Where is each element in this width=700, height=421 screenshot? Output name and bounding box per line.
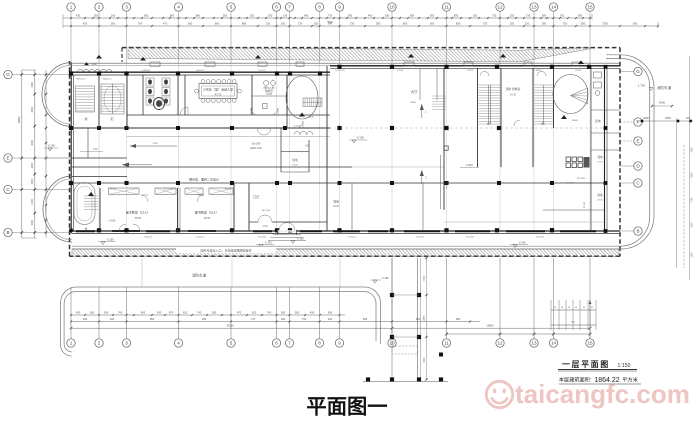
svg-text:730: 730 xyxy=(328,14,333,18)
svg-text:配: 配 xyxy=(111,117,114,121)
svg-text:15.95: 15.95 xyxy=(266,94,272,96)
svg-text:C4512-J: C4512-J xyxy=(196,70,204,72)
svg-text:15: 15 xyxy=(587,341,593,346)
svg-text:1900: 1900 xyxy=(31,220,34,226)
svg-text:3: 3 xyxy=(125,5,128,10)
svg-text:380: 380 xyxy=(578,14,583,18)
svg-text:值电: 值电 xyxy=(292,158,298,162)
svg-text:7800: 7800 xyxy=(327,20,333,24)
svg-text:WT122: WT122 xyxy=(225,189,232,191)
svg-text:730: 730 xyxy=(350,22,355,26)
svg-text:180: 180 xyxy=(385,14,390,18)
svg-text:G: G xyxy=(636,69,640,74)
svg-text:6300: 6300 xyxy=(424,275,426,281)
svg-text:740: 740 xyxy=(197,310,202,314)
svg-text:DC2T2-N: DC2T2-N xyxy=(335,70,345,72)
svg-text:860: 860 xyxy=(215,22,220,26)
svg-text:900: 900 xyxy=(633,22,638,26)
svg-text:380: 380 xyxy=(542,14,547,18)
svg-text:430: 430 xyxy=(83,317,88,321)
svg-text:LM042: LM042 xyxy=(410,102,417,104)
svg-text:门厅: 门厅 xyxy=(253,195,260,200)
svg-text:830: 830 xyxy=(403,22,408,26)
svg-text:7: 7 xyxy=(288,5,291,10)
svg-text:36.52: 36.52 xyxy=(135,217,142,220)
svg-text:梯: 梯 xyxy=(85,227,88,231)
svg-text:600: 600 xyxy=(430,14,435,18)
svg-text:900: 900 xyxy=(328,310,333,314)
svg-text:870: 870 xyxy=(237,310,242,314)
svg-text:WT122: WT122 xyxy=(110,189,117,191)
svg-text:1:12: 1:12 xyxy=(153,142,158,145)
svg-text:3600: 3600 xyxy=(424,357,426,363)
svg-text:830: 830 xyxy=(410,14,415,18)
svg-text:2850: 2850 xyxy=(424,315,426,321)
svg-text:大厅: 大厅 xyxy=(411,89,418,94)
svg-text:360: 360 xyxy=(94,14,99,18)
svg-text:图书教室（15人）: 图书教室（15人） xyxy=(195,210,219,215)
svg-text:8YC0805: 8YC0805 xyxy=(577,178,586,180)
svg-text:43.75: 43.75 xyxy=(215,93,222,97)
svg-text:8: 8 xyxy=(318,5,321,10)
svg-text:11: 11 xyxy=(444,5,449,10)
svg-text:1500: 1500 xyxy=(31,179,34,185)
svg-text:300: 300 xyxy=(223,14,228,18)
svg-text:730: 730 xyxy=(298,22,303,26)
svg-text:14: 14 xyxy=(551,341,557,346)
svg-text:PC085: PC085 xyxy=(584,201,586,208)
svg-text:19.04: 19.04 xyxy=(292,165,298,167)
svg-text:2: 2 xyxy=(98,341,101,346)
svg-text:-0.150: -0.150 xyxy=(47,144,55,148)
svg-text:400: 400 xyxy=(110,317,115,321)
svg-text:230: 230 xyxy=(525,22,530,26)
svg-text:配电: 配电 xyxy=(595,119,601,123)
svg-text:13.06: 13.06 xyxy=(597,162,603,164)
svg-text:1: 1 xyxy=(70,341,73,346)
svg-text:16800: 16800 xyxy=(17,116,21,124)
svg-text:640: 640 xyxy=(328,317,333,321)
svg-text:-0.150: -0.150 xyxy=(106,238,114,242)
svg-text:250: 250 xyxy=(510,14,515,18)
svg-text:1500: 1500 xyxy=(31,82,34,88)
svg-text:7: 7 xyxy=(288,341,291,346)
svg-text:900: 900 xyxy=(188,22,193,26)
svg-text:880: 880 xyxy=(196,14,201,18)
svg-text:770: 770 xyxy=(251,317,256,321)
svg-text:7.50: 7.50 xyxy=(93,148,98,151)
svg-text:6450: 6450 xyxy=(665,116,671,120)
svg-text:15: 15 xyxy=(587,5,593,10)
svg-text:760: 760 xyxy=(118,310,123,314)
svg-text:(49Ⅱ/1.200): (49Ⅱ/1.200) xyxy=(250,147,262,150)
svg-text:10: 10 xyxy=(389,5,395,10)
svg-text:LM022: LM022 xyxy=(535,70,542,72)
svg-text:380: 380 xyxy=(348,14,353,18)
svg-text:730: 730 xyxy=(483,22,488,26)
svg-text:950: 950 xyxy=(456,317,461,321)
svg-text:消防 控制室: 消防 控制室 xyxy=(506,87,521,91)
svg-text:860: 860 xyxy=(170,14,175,18)
svg-text:460: 460 xyxy=(368,14,373,18)
svg-text:24.32: 24.32 xyxy=(510,94,517,97)
svg-text:平面图一: 平面图一 xyxy=(306,395,387,418)
svg-text:750: 750 xyxy=(560,14,565,18)
svg-text:FN3023-C: FN3023-C xyxy=(76,79,86,81)
svg-text:一层平面图: 一层平面图 xyxy=(562,360,610,369)
svg-text:850: 850 xyxy=(141,310,146,314)
svg-text:3300: 3300 xyxy=(31,140,34,146)
svg-text:1L5023: 1L5023 xyxy=(293,126,301,128)
svg-text:C2025: C2025 xyxy=(467,70,474,72)
svg-text:-0.150: -0.150 xyxy=(296,238,304,241)
svg-text:1:150: 1:150 xyxy=(618,363,631,369)
svg-text:美术教室（15人）: 美术教室（15人） xyxy=(126,210,150,215)
svg-text:430: 430 xyxy=(76,310,81,314)
svg-text:-0.05: -0.05 xyxy=(304,146,310,148)
svg-text:休憩室: 休憩室 xyxy=(265,89,273,93)
svg-text:DC2025: DC2025 xyxy=(258,237,267,239)
svg-text:MC7030: MC7030 xyxy=(262,210,271,212)
svg-text:梯: 梯 xyxy=(85,117,88,121)
svg-text:展示区，面积二次设计: 展示区，面积二次设计 xyxy=(189,177,219,182)
svg-text:430: 430 xyxy=(83,22,88,26)
svg-text:-0.750: -0.750 xyxy=(518,241,526,245)
svg-text:950: 950 xyxy=(363,317,368,321)
svg-text:C1512-J: C1512-J xyxy=(348,237,356,239)
svg-text:1500: 1500 xyxy=(692,252,694,258)
svg-text:C1512-J: C1512-J xyxy=(416,237,424,239)
svg-text:WT122: WT122 xyxy=(150,72,158,74)
svg-text:8: 8 xyxy=(318,341,321,346)
svg-text:7300: 7300 xyxy=(602,22,608,26)
svg-text:300: 300 xyxy=(473,14,478,18)
svg-text:EPC0805: EPC0805 xyxy=(566,183,575,185)
svg-text:-0.750: -0.750 xyxy=(264,241,272,245)
svg-text:620: 620 xyxy=(252,310,257,314)
svg-text:6: 6 xyxy=(275,341,278,346)
svg-text:5: 5 xyxy=(230,5,233,10)
svg-text:600: 600 xyxy=(430,22,435,26)
svg-text:1800: 1800 xyxy=(692,147,694,153)
svg-text:C1512-J: C1512-J xyxy=(144,237,152,239)
svg-text:830: 830 xyxy=(454,14,459,18)
svg-text:E: E xyxy=(636,139,639,144)
svg-text:19800: 19800 xyxy=(486,324,494,328)
svg-text:-0.150: -0.150 xyxy=(356,136,364,140)
svg-text:G: G xyxy=(6,72,10,77)
svg-text:33300: 33300 xyxy=(226,324,234,328)
svg-text:430: 430 xyxy=(76,14,81,18)
svg-text:C2025: C2025 xyxy=(575,70,582,72)
svg-text:5: 5 xyxy=(230,341,233,346)
svg-text:950: 950 xyxy=(212,310,217,314)
svg-text:1600: 1600 xyxy=(31,163,34,169)
svg-text:11: 11 xyxy=(444,341,449,346)
svg-text:950: 950 xyxy=(295,310,300,314)
svg-text:DC2025: DC2025 xyxy=(536,237,545,239)
svg-text:930: 930 xyxy=(157,310,162,314)
svg-text:470: 470 xyxy=(163,22,168,26)
svg-text:F: F xyxy=(637,120,640,125)
svg-text:240: 240 xyxy=(104,310,109,314)
svg-text:23.06: 23.06 xyxy=(333,206,339,208)
svg-text:B: B xyxy=(6,230,9,235)
svg-text:930: 930 xyxy=(202,317,207,321)
svg-text:13: 13 xyxy=(531,5,537,10)
svg-text:36.52: 36.52 xyxy=(204,217,211,220)
svg-text:1750: 1750 xyxy=(692,197,694,203)
svg-text:380: 380 xyxy=(376,22,381,26)
svg-text:C1512-J: C1512-J xyxy=(196,237,204,239)
svg-text:600: 600 xyxy=(90,310,95,314)
svg-text:750: 750 xyxy=(563,22,568,26)
svg-text:±0.000: ±0.000 xyxy=(252,142,261,146)
svg-text:D400: D400 xyxy=(91,64,97,66)
svg-text:E: E xyxy=(6,156,9,161)
svg-text:D400: D400 xyxy=(308,117,314,119)
svg-text:C1528: C1528 xyxy=(397,70,404,72)
svg-text:-0.02: -0.02 xyxy=(262,226,268,228)
svg-text:消防车道: 消防车道 xyxy=(657,85,672,90)
svg-text:360: 360 xyxy=(111,22,116,26)
svg-text:3300: 3300 xyxy=(31,107,34,113)
svg-text:DC2T2: DC2T2 xyxy=(259,70,267,72)
svg-text:900: 900 xyxy=(144,14,149,18)
svg-text:940: 940 xyxy=(304,14,309,18)
svg-text:4000: 4000 xyxy=(659,101,666,105)
svg-text:12: 12 xyxy=(497,5,503,10)
svg-text:2: 2 xyxy=(98,5,101,10)
svg-text:9: 9 xyxy=(338,341,341,346)
svg-text:23.06: 23.06 xyxy=(597,200,603,202)
svg-text:强电: 强电 xyxy=(597,155,603,159)
svg-text:730: 730 xyxy=(492,14,497,18)
svg-text:-1.750: -1.750 xyxy=(637,83,645,87)
svg-text:1: 1 xyxy=(70,5,73,10)
svg-text:taicangfc.com: taicangfc.com xyxy=(515,379,690,409)
svg-text:260: 260 xyxy=(281,317,286,321)
svg-text:910: 910 xyxy=(416,317,421,321)
svg-text:280: 280 xyxy=(281,310,286,314)
svg-text:730: 730 xyxy=(526,14,531,18)
svg-text:830: 830 xyxy=(456,22,461,26)
svg-text:12: 12 xyxy=(497,341,503,346)
svg-text:880: 880 xyxy=(242,22,247,26)
svg-text:740: 740 xyxy=(267,310,272,314)
svg-text:4: 4 xyxy=(177,5,180,10)
svg-text:PC070: PC070 xyxy=(447,181,449,188)
svg-text:9: 9 xyxy=(338,5,341,10)
svg-text:850: 850 xyxy=(150,317,155,321)
svg-text:-2.500: -2.500 xyxy=(465,163,473,167)
svg-text:N5601-S: N5601-S xyxy=(103,79,112,81)
svg-text:DC2025: DC2025 xyxy=(466,237,475,239)
svg-text:B: B xyxy=(636,229,639,234)
svg-text:-0.030: -0.030 xyxy=(109,220,116,223)
svg-text:WT122WT122: WT122WT122 xyxy=(164,189,178,191)
svg-text:14: 14 xyxy=(551,5,557,10)
svg-text:150: 150 xyxy=(686,116,691,120)
svg-text:380: 380 xyxy=(581,22,586,26)
svg-text:U8500: U8500 xyxy=(572,120,579,122)
svg-text:2500: 2500 xyxy=(692,172,694,178)
svg-text:消防车道: 消防车道 xyxy=(192,273,207,278)
svg-text:260: 260 xyxy=(281,22,286,26)
svg-text:（预约入室）: （预约入室） xyxy=(261,86,276,90)
svg-text:380: 380 xyxy=(542,22,547,26)
svg-text:300: 300 xyxy=(266,22,271,26)
svg-text:620: 620 xyxy=(183,310,188,314)
svg-text:250: 250 xyxy=(510,22,515,26)
svg-text:13: 13 xyxy=(531,341,537,346)
svg-text:D1528-J: D1528-J xyxy=(142,70,150,72)
svg-text:3000: 3000 xyxy=(692,222,694,228)
svg-text:少先队（室）活动人室: 少先队（室）活动人室 xyxy=(203,87,233,92)
svg-text:弱电: 弱电 xyxy=(597,193,603,197)
svg-text:3: 3 xyxy=(125,341,128,346)
svg-text:2400: 2400 xyxy=(31,199,34,205)
svg-text:190: 190 xyxy=(268,14,273,18)
svg-text:6450: 6450 xyxy=(643,116,649,120)
svg-text:870: 870 xyxy=(169,310,174,314)
svg-text:730: 730 xyxy=(302,317,307,321)
svg-text:-0.150: -0.150 xyxy=(381,276,389,280)
svg-text:4: 4 xyxy=(177,341,180,346)
svg-text:园外车道出入口，与市政道路顺接操作: 园外车道出入口，与市政道路顺接操作 xyxy=(200,248,251,253)
svg-text:130: 130 xyxy=(283,14,288,18)
svg-text:250: 250 xyxy=(250,14,255,18)
svg-text:250: 250 xyxy=(314,22,319,26)
svg-text:强电: 强电 xyxy=(333,200,339,204)
svg-text:760: 760 xyxy=(138,22,143,26)
svg-text:160: 160 xyxy=(111,14,116,18)
svg-text:6: 6 xyxy=(275,5,278,10)
svg-text:430: 430 xyxy=(310,310,315,314)
